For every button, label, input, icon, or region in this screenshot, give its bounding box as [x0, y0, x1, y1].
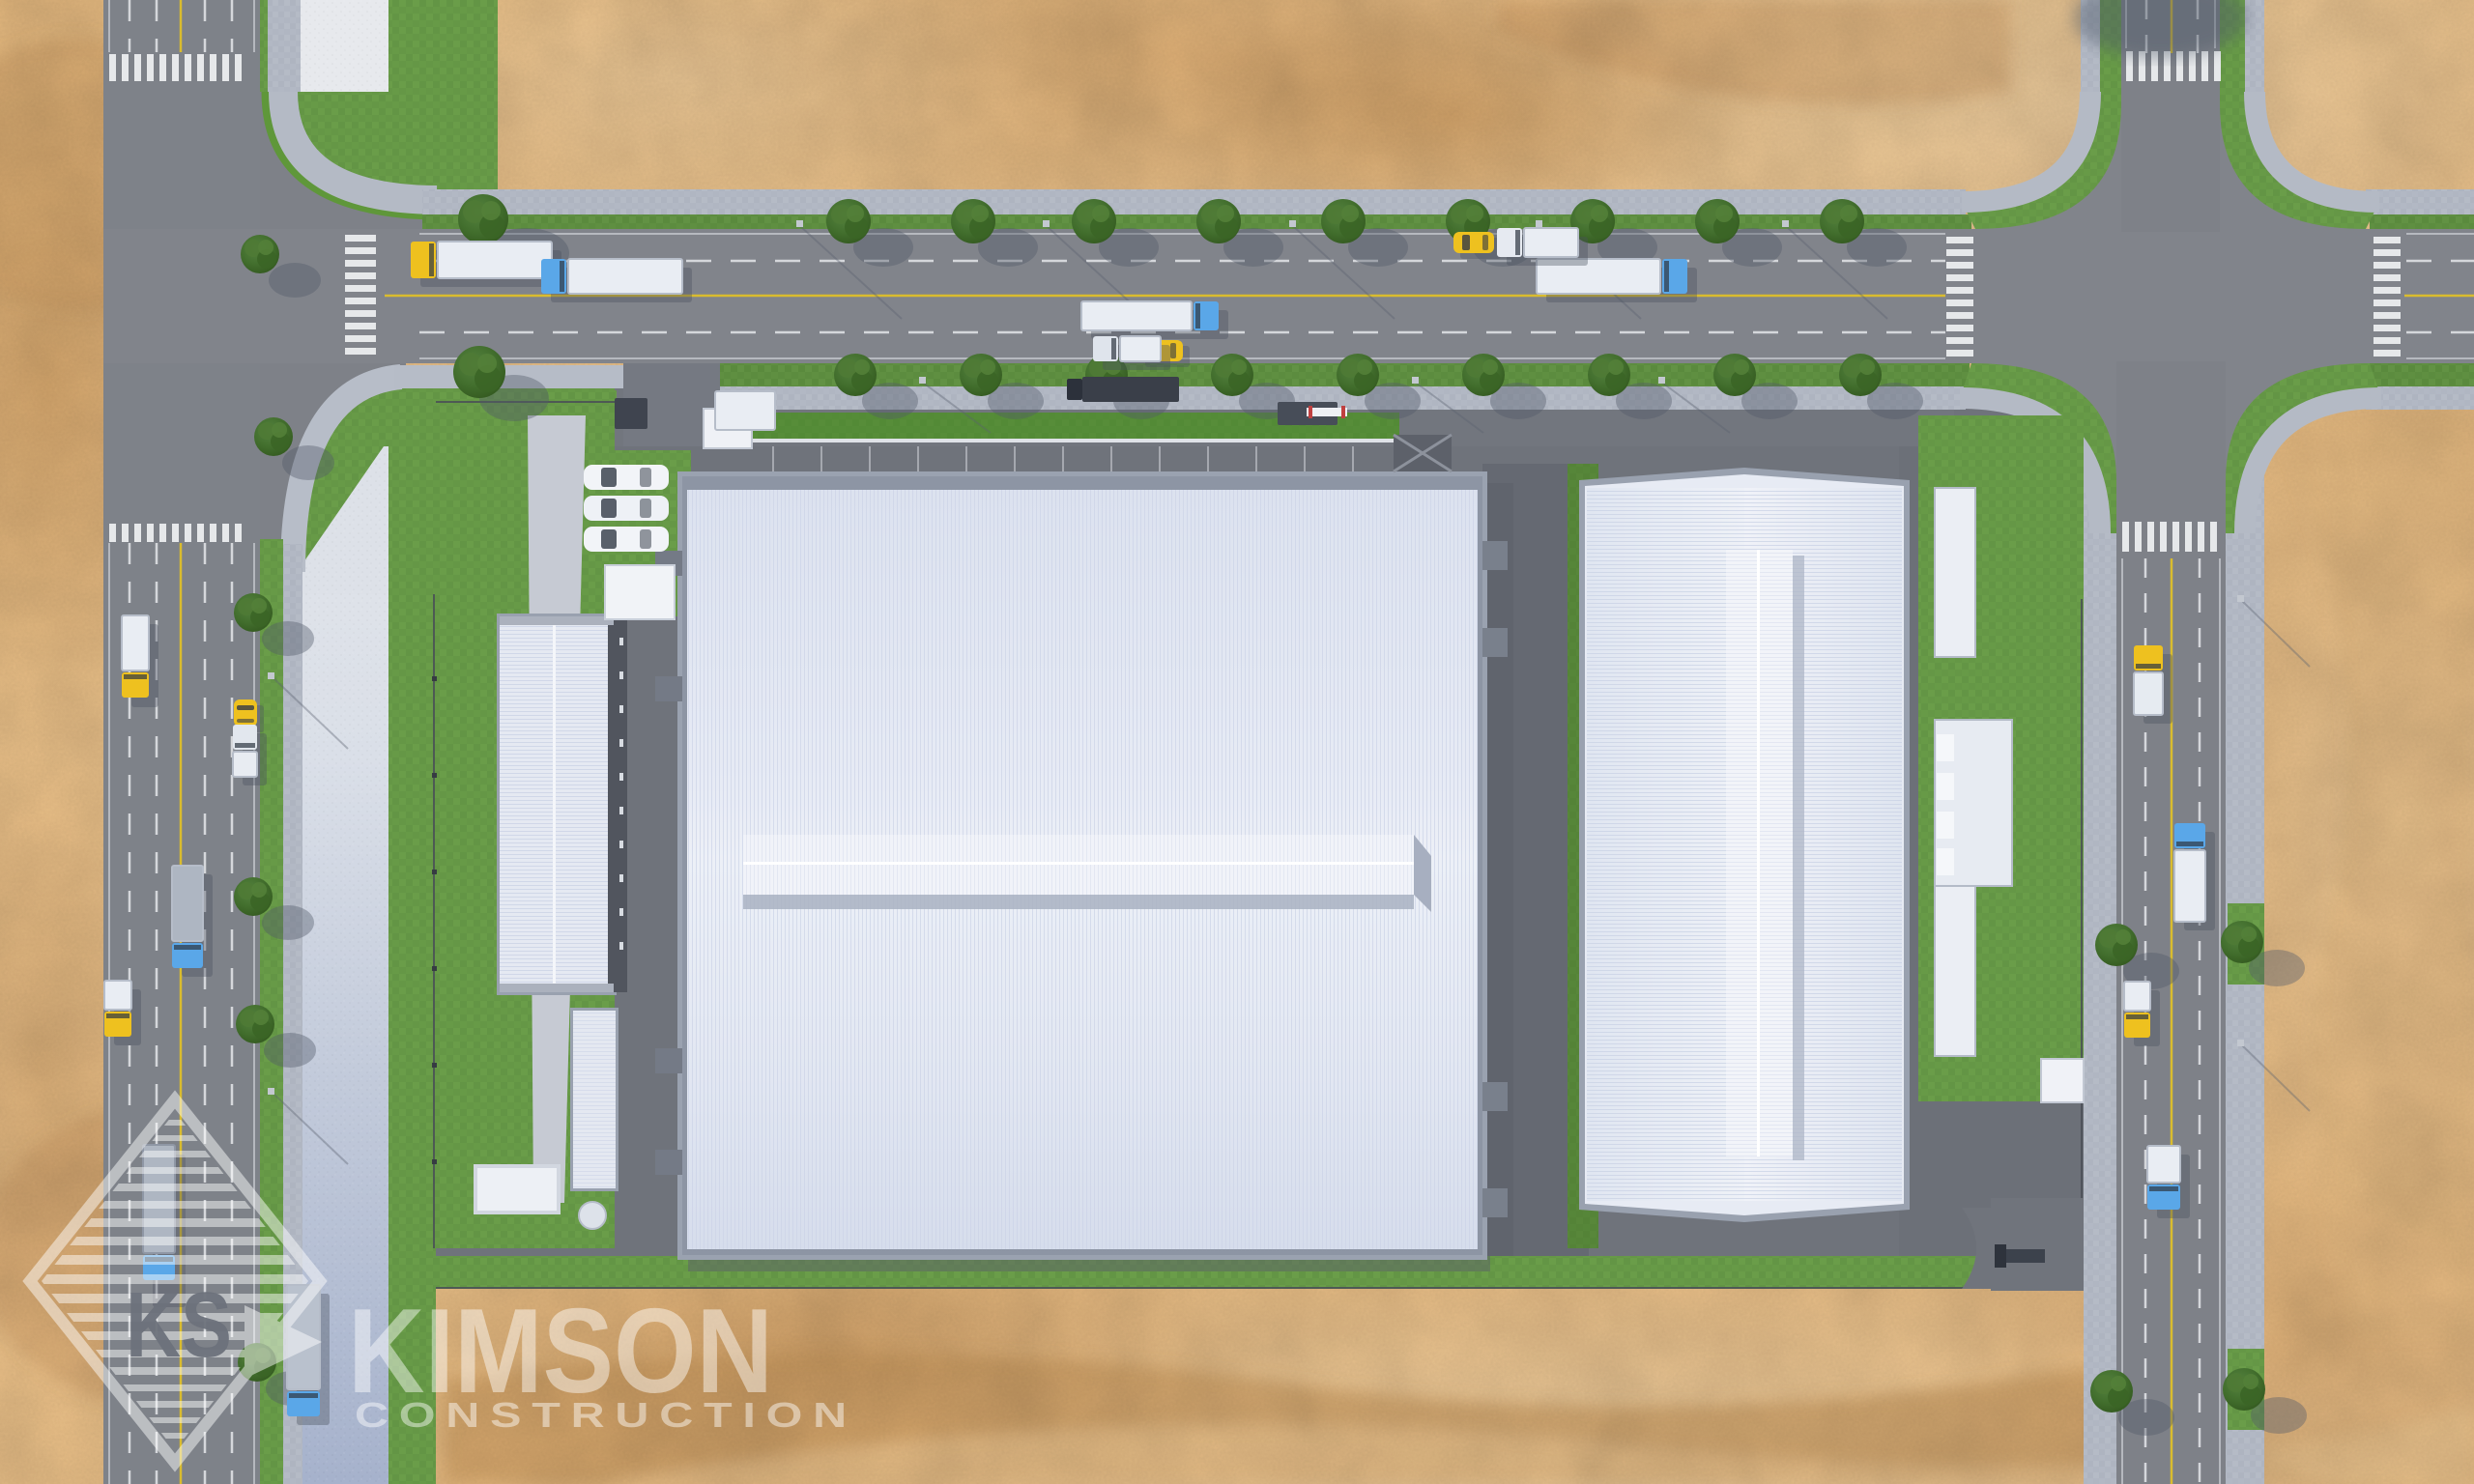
- svg-text:CONSTRUCTION: CONSTRUCTION: [355, 1395, 857, 1435]
- svg-text:KS: KS: [126, 1273, 232, 1377]
